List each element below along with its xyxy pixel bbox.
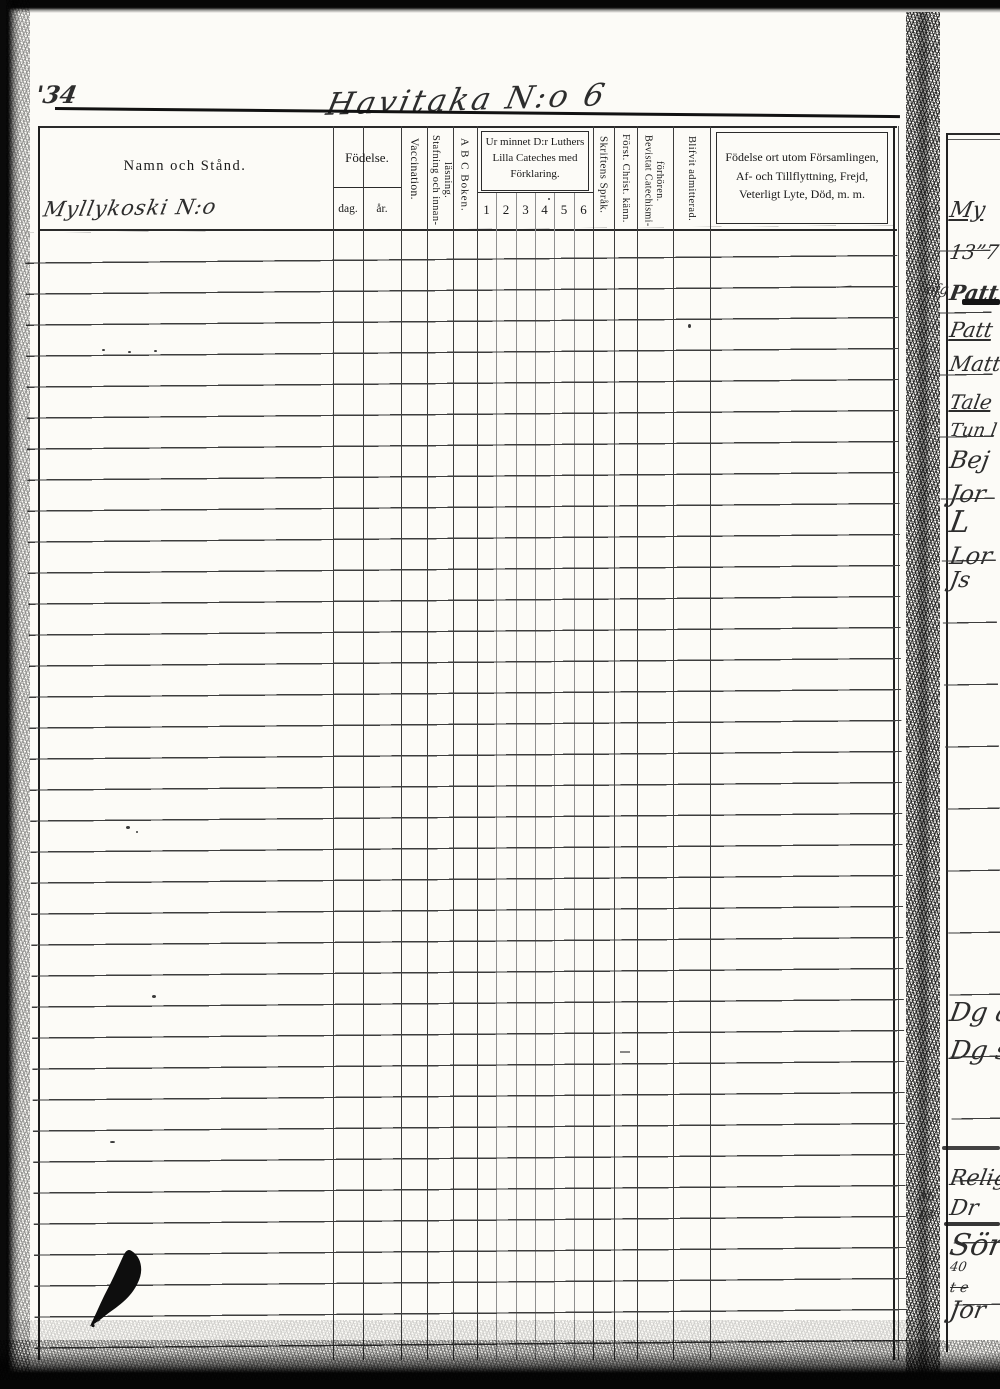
- column-header-birth-year: år.: [363, 203, 401, 215]
- ruled-rows: [25, 225, 907, 1357]
- table-top-border: [38, 126, 897, 128]
- speck: [102, 349, 105, 351]
- scan-edge-bottom-noise: [0, 1340, 1000, 1380]
- catechism-grade-5: 5: [554, 202, 574, 218]
- speck: [110, 1141, 115, 1143]
- gutter-mark: Ab: [917, 1190, 936, 1204]
- column-header-catechism: Ur minnet D:r Luthers Lilla Cateches med…: [482, 135, 588, 183]
- village-name-handwritten: Myllykoski N:o: [41, 194, 219, 221]
- page-title-handwritten: Havitaka N:o 6: [323, 77, 611, 123]
- catechism-grade-2: 2: [496, 202, 516, 218]
- column-header-catechism-meetings: Bevistat Catechismi-förhören.: [642, 134, 665, 228]
- handwriting-fragment: 13”7: [948, 240, 1000, 264]
- handwriting-fragment: Relig: [948, 1166, 1000, 1191]
- handwriting-fragment: Patt: [948, 318, 1000, 342]
- catechism-grade-3: 3: [516, 202, 535, 218]
- column-header-spelling-reading: Stafning och innan-läsning.: [429, 134, 453, 226]
- speck: [548, 198, 550, 200]
- handwriting-fragment: Lor: [948, 542, 1000, 570]
- handwriting-fragment: Tale: [948, 390, 1000, 414]
- column-header-vaccination: Vaccination.: [407, 138, 420, 200]
- pen-dash-mark: —: [835, 275, 852, 295]
- column-header-birth-day: dag.: [333, 203, 363, 215]
- birth-divider: [333, 187, 401, 188]
- column-header-notes: Födelse ort utom Församlingen, Af- och T…: [722, 148, 882, 204]
- handwriting-fragment: Tun l: [948, 420, 1000, 441]
- handwriting-fragment: Sör: [947, 1228, 1000, 1263]
- speck: [126, 826, 130, 829]
- column-header-name: Namn och Stånd.: [60, 158, 310, 175]
- handwriting-fragment: Matt: [948, 352, 1000, 376]
- speck: [128, 351, 131, 353]
- handwriting-fragment: Bej: [948, 446, 1000, 474]
- handwriting-fragment: Jor: [948, 1296, 1000, 1324]
- gutter-mark: 18: [917, 1208, 935, 1222]
- handwriting-fragment: Jor: [948, 480, 1000, 508]
- right-page-top-border-inner: [946, 139, 1000, 140]
- column-header-christian-knowledge: Först. Christ. känn.: [619, 134, 631, 223]
- scan-edge-left-noise: [6, 0, 30, 1389]
- ink-smear: [942, 1146, 1000, 1150]
- column-header-scripture-language: Skriftens Språk.: [597, 136, 610, 213]
- ink-smear: [962, 299, 1000, 305]
- handwriting-fragment: 40: [949, 1260, 1000, 1275]
- handwriting-fragment: t e: [949, 1280, 1000, 1296]
- ink-smear: [944, 1222, 1000, 1226]
- scan-edge-top: [0, 0, 1000, 13]
- page-number: '34: [33, 80, 79, 109]
- right-page-top-border: [946, 133, 1000, 135]
- column-header-abc-book: A B C Boken.: [458, 138, 471, 212]
- column-header-birth: Födelse.: [333, 150, 401, 166]
- handwriting-fragment: Js: [948, 568, 1000, 593]
- handwriting-fragment: Dg s: [947, 1036, 1000, 1066]
- catechism-grade-4: 4: [535, 202, 554, 218]
- catechism-grade-1: 1: [477, 202, 496, 218]
- page-gutter-core: [916, 12, 930, 1389]
- column-header-admitted: Blifvit admitterad.: [685, 136, 697, 221]
- speck: [688, 324, 691, 328]
- handwriting-fragment: L: [947, 505, 1000, 540]
- speck: [136, 831, 138, 833]
- catechism-grade-6: 6: [574, 202, 593, 218]
- handwriting-fragment: Dr: [948, 1196, 1000, 1221]
- handwriting-fragment: Dg a: [947, 998, 1000, 1028]
- scanned-ledger-page: '34 Havitaka N:o 6 Namn och Stånd. Födel…: [0, 0, 1000, 1389]
- speck: [152, 995, 156, 998]
- speck: [620, 1051, 630, 1053]
- handwriting-fragment: My: [948, 198, 1000, 223]
- speck: [154, 350, 157, 352]
